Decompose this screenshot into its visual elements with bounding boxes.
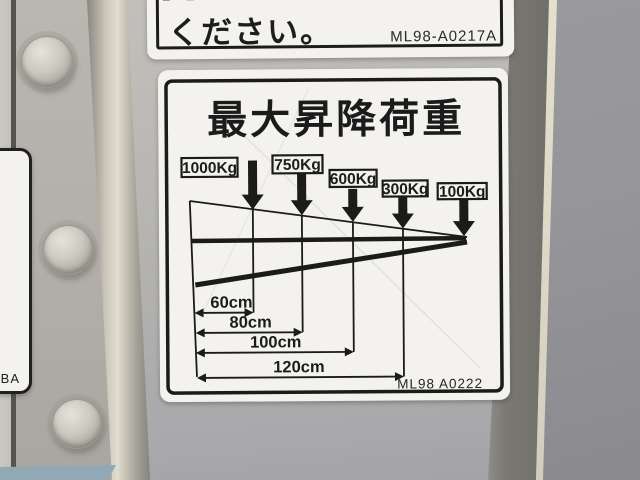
distance-label-120cm: 120cm xyxy=(273,358,325,376)
down-arrow-icon xyxy=(291,173,313,215)
left-label-code: BA xyxy=(1,371,20,386)
dimension-line-120cm xyxy=(199,377,402,378)
dimension-lines: 60cm 80cm 100cm 120cm xyxy=(194,293,404,383)
caution-label-part-number: ML98-A0217A xyxy=(390,28,497,46)
load-label-750kg: 750Kg xyxy=(274,157,321,174)
label-part-number: ML98 A0222 xyxy=(397,376,483,392)
reference-line xyxy=(302,215,303,332)
caution-label-text: ください。 xyxy=(168,6,333,52)
rivet xyxy=(21,36,73,88)
caution-label: ください。 ML98-A0217A xyxy=(147,0,515,60)
arrowhead-icon xyxy=(197,373,206,382)
arrowhead-icon xyxy=(345,347,354,356)
load-label-100kg: 100Kg xyxy=(439,183,486,200)
rivet xyxy=(52,399,102,449)
load-line xyxy=(190,199,467,239)
platform-bottom-line xyxy=(195,242,467,285)
load-label-1000kg: 1000Kg xyxy=(182,160,237,177)
arrowhead-icon xyxy=(196,328,205,337)
distance-label-60cm: 60cm xyxy=(210,294,252,312)
left-reference-line xyxy=(190,201,197,377)
arrowhead-icon xyxy=(196,348,205,357)
max-lifting-load-label: 最大昇降荷重 1000Kg 750Kg 600Kg 300Kg 100Kg xyxy=(158,68,510,402)
reference-line xyxy=(253,210,254,313)
load-boxes: 1000Kg 750Kg 600Kg 300Kg 100Kg xyxy=(181,154,486,203)
platform-top-line xyxy=(192,238,466,241)
down-arrow-icon xyxy=(342,189,364,222)
capacity-diagram: 最大昇降荷重 1000Kg 750Kg 600Kg 300Kg 100Kg xyxy=(158,68,510,402)
down-arrow-icon xyxy=(453,199,475,236)
left-label-fragment: BA xyxy=(0,148,32,394)
load-label-600kg: 600Kg xyxy=(330,171,377,188)
floor-strip xyxy=(0,465,116,480)
load-label-300kg: 300Kg xyxy=(382,181,429,198)
distance-label-80cm: 80cm xyxy=(229,313,271,331)
down-arrow-icon xyxy=(392,197,414,228)
dimension-line-100cm xyxy=(198,352,352,353)
arrowhead-icon xyxy=(195,308,204,317)
label-title: 最大昇降荷重 xyxy=(207,97,465,143)
rivet xyxy=(43,225,93,275)
photo-scene: BA ください。 ML98-A0217A 最大昇降荷重 1000Kg xyxy=(0,0,640,480)
down-arrow-icon xyxy=(241,160,263,209)
distance-label-100cm: 100cm xyxy=(250,333,302,351)
